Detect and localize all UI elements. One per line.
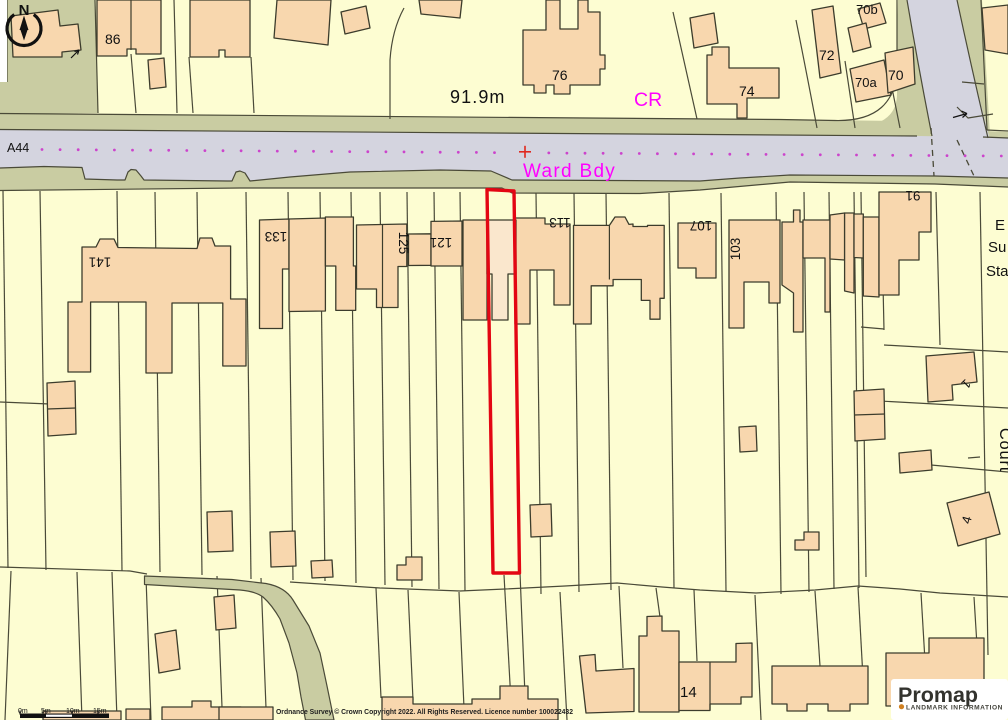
svg-text:LANDMARK INFORMATION: LANDMARK INFORMATION: [906, 705, 1003, 712]
svg-text:Ordnance Survey © Crown Copyri: Ordnance Survey © Crown Copyright 2022. …: [276, 707, 573, 716]
svg-text:Su: Su: [988, 239, 1006, 256]
svg-text:15m: 15m: [93, 708, 107, 715]
svg-text:Court: Court: [996, 428, 1008, 472]
svg-text:10m: 10m: [66, 708, 80, 715]
svg-text:E: E: [995, 217, 1005, 234]
svg-text:113: 113: [549, 215, 571, 230]
svg-text:72: 72: [819, 47, 835, 63]
svg-text:Sta: Sta: [986, 263, 1008, 280]
svg-text:91.9m: 91.9m: [450, 87, 506, 107]
svg-text:Promap: Promap: [898, 683, 978, 707]
svg-text:70b: 70b: [856, 2, 878, 17]
svg-text:86: 86: [105, 31, 121, 47]
svg-text:121: 121: [430, 235, 453, 250]
svg-text:N: N: [19, 2, 30, 19]
svg-text:107: 107: [690, 218, 713, 233]
svg-text:133: 133: [265, 229, 288, 244]
svg-text:A44: A44: [7, 141, 29, 155]
svg-text:91: 91: [905, 188, 920, 203]
svg-text:70a: 70a: [855, 75, 877, 90]
svg-text:74: 74: [739, 83, 755, 99]
svg-text:103: 103: [728, 238, 743, 261]
svg-text:141: 141: [89, 255, 112, 270]
svg-text:0m: 0m: [18, 708, 28, 715]
svg-text:5m: 5m: [41, 708, 51, 715]
svg-text:76: 76: [552, 67, 568, 83]
svg-text:125: 125: [396, 232, 411, 255]
svg-text:14: 14: [680, 684, 697, 701]
svg-text:Ward Bdy: Ward Bdy: [523, 161, 616, 182]
svg-text:70: 70: [888, 67, 904, 83]
svg-text:CR: CR: [634, 89, 662, 111]
